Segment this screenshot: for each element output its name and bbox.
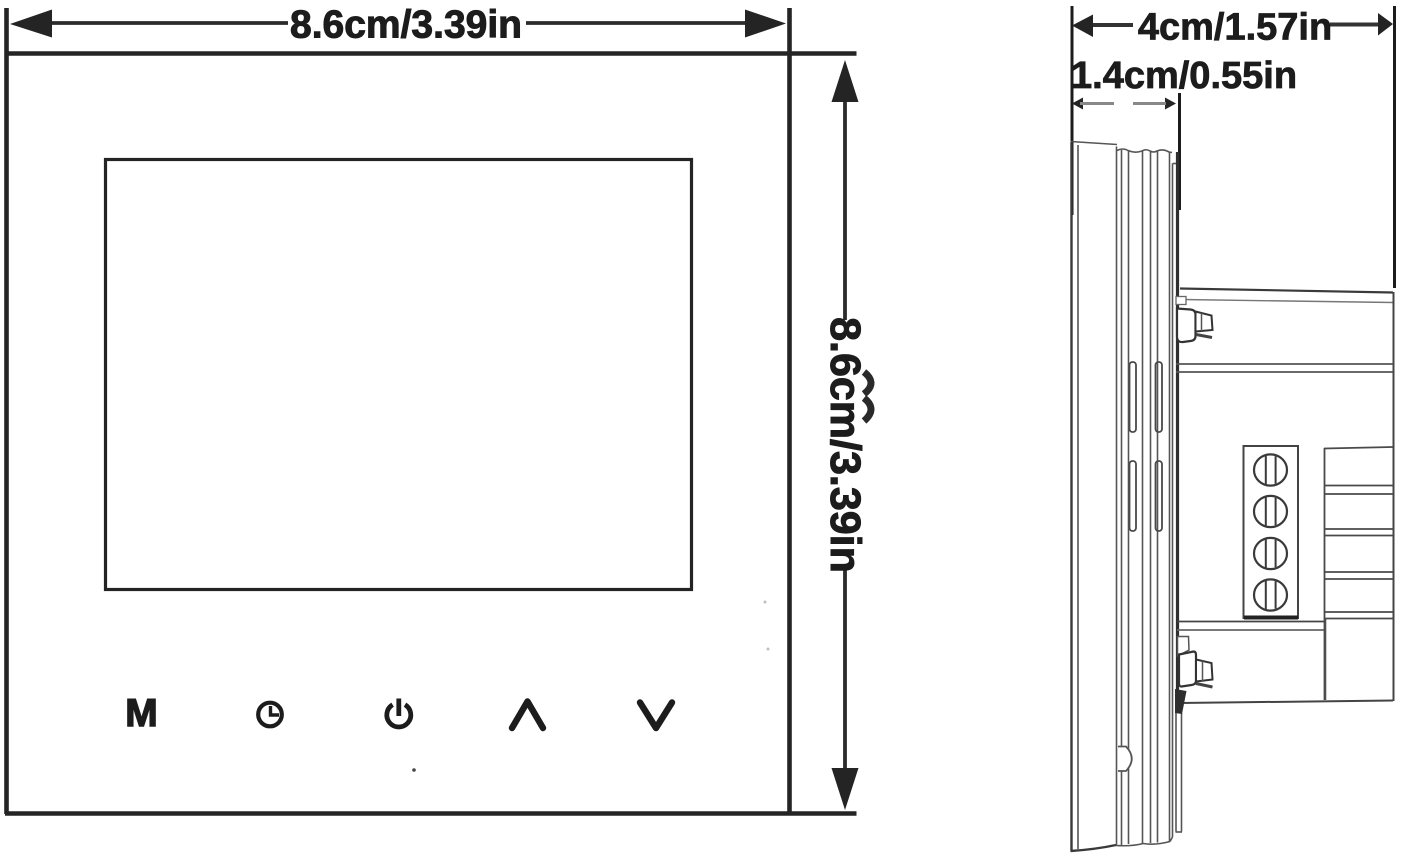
svg-text:4cm/1.57in: 4cm/1.57in bbox=[1138, 7, 1332, 49]
svg-text:M: M bbox=[125, 692, 158, 735]
svg-text:1.4cm/0.55in: 1.4cm/0.55in bbox=[1071, 55, 1297, 97]
svg-text:8.6cm/3.39in: 8.6cm/3.39in bbox=[290, 4, 522, 47]
svg-text:8.6cm/3.39in: 8.6cm/3.39in bbox=[821, 317, 869, 573]
